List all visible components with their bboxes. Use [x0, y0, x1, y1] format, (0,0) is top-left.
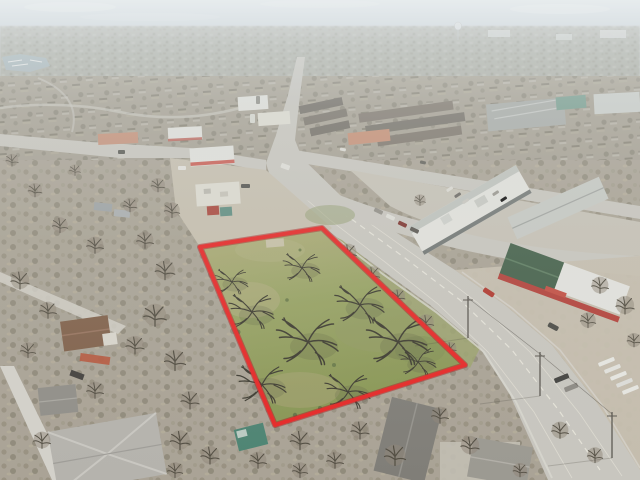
- aerial-photo: [0, 0, 640, 480]
